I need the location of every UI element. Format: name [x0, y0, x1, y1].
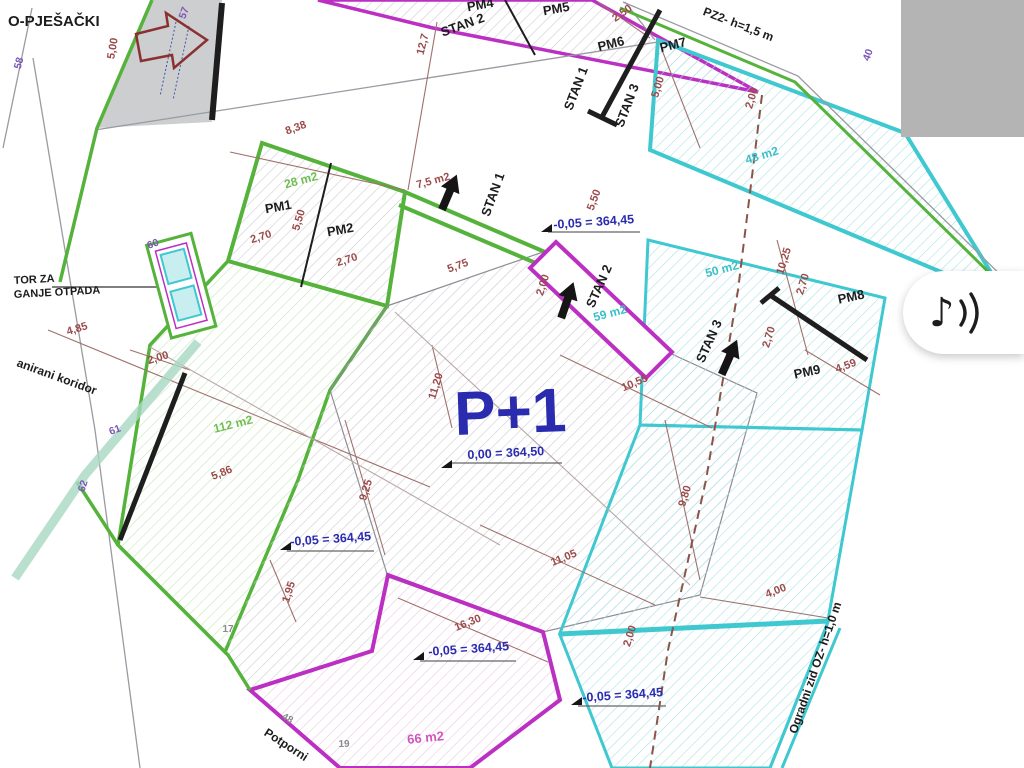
- dimension-label: 12,7: [415, 32, 432, 56]
- dimension-label: 5,00: [105, 37, 121, 60]
- dimension-label: 10,25: [774, 246, 794, 276]
- screenshot-root: O-PJEŠAČKI 57 58 60 61 62 40 17 19 48 5,…: [0, 0, 1024, 768]
- pedestrian-corridor-strip: [97, 0, 222, 128]
- unit-label: STAN 1: [478, 171, 508, 219]
- waste-area-label: TOR ZA: [14, 273, 55, 287]
- dimension-label: 4,85: [65, 320, 89, 338]
- parcel-number: 40: [861, 47, 876, 62]
- parcel-number: 19: [338, 739, 350, 750]
- wall-note-label: PZ2- h=1,5 m: [701, 4, 775, 44]
- site-plan-image: O-PJEŠAČKI 57 58 60 61 62 40 17 19 48 5,…: [0, 0, 1024, 768]
- unit-label: STAN 1: [561, 65, 591, 113]
- parcel-number: 62: [76, 479, 91, 494]
- dimension-label: 5,75: [446, 257, 470, 276]
- parcel-number: 17: [222, 624, 234, 635]
- audio-button[interactable]: ♪: [903, 271, 1024, 354]
- gray-overlay: [901, 0, 1024, 137]
- street-label: O-PJEŠAČKI: [8, 12, 100, 30]
- dimension-label: 5,50: [585, 188, 604, 212]
- sound-waves-icon: [957, 289, 985, 337]
- dimension-label: 8,38: [284, 119, 308, 138]
- building-floors-label: P+1: [453, 376, 567, 449]
- elevation-label: -0,05 = 364,45: [553, 212, 635, 232]
- waste-area-label: GANJE OTPADA: [14, 284, 101, 301]
- parcel-number: 58: [12, 56, 27, 71]
- music-note-icon: ♪: [929, 293, 955, 333]
